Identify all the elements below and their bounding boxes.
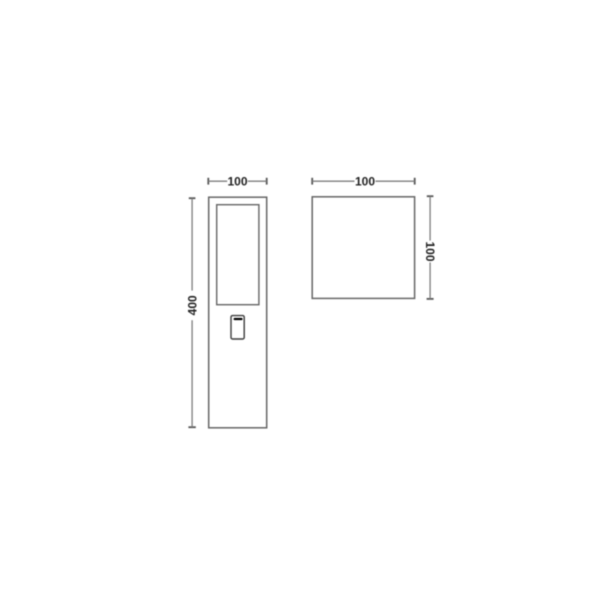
svg-text:100: 100 <box>227 174 247 188</box>
svg-text:100: 100 <box>423 241 437 261</box>
svg-text:100: 100 <box>355 174 375 188</box>
svg-text:400: 400 <box>185 295 199 315</box>
